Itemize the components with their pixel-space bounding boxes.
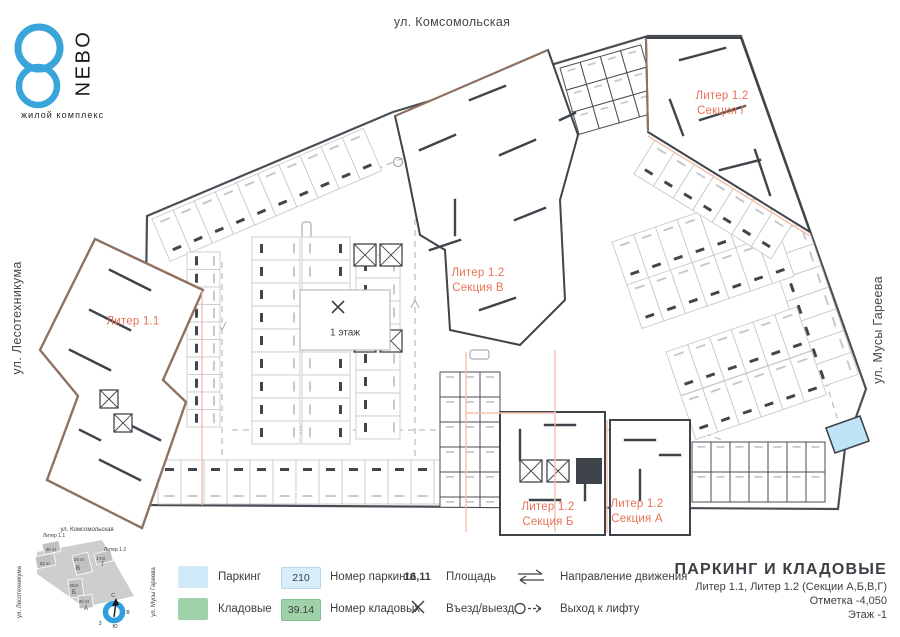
room-number-mark bbox=[774, 476, 782, 478]
stall-number-mark bbox=[293, 290, 295, 300]
room-number-mark bbox=[698, 446, 706, 448]
elevator-core bbox=[520, 460, 542, 482]
sheet-subtitle: Литер 1.1, Литер 1.2 (Секции А,Б,В,Г) bbox=[567, 581, 887, 593]
stall-number-mark bbox=[213, 413, 215, 423]
label-section-a-line1: Литер 1.2 bbox=[611, 497, 664, 512]
room-number-mark bbox=[466, 376, 474, 378]
parking-stall bbox=[187, 322, 220, 340]
sheet-floor: Этаж -1 bbox=[567, 609, 887, 621]
wheel-stop bbox=[280, 468, 289, 471]
minimap-bld-4: 20эт bbox=[69, 583, 78, 588]
stall-number-mark bbox=[395, 495, 405, 497]
compass-east: В bbox=[126, 610, 130, 616]
parking-stall bbox=[252, 398, 300, 421]
stall-number-mark bbox=[393, 285, 395, 295]
room-number-mark bbox=[736, 446, 744, 448]
storage-room bbox=[460, 422, 480, 447]
stall-number-mark bbox=[309, 405, 311, 415]
parking-stall bbox=[187, 357, 220, 375]
wheel-stop bbox=[364, 377, 367, 386]
parking-stall bbox=[187, 375, 220, 393]
wheel-stop bbox=[339, 428, 342, 437]
room-number-mark bbox=[466, 451, 474, 453]
stall-number-mark bbox=[293, 359, 295, 369]
parking-stall bbox=[388, 460, 411, 504]
parking-stall bbox=[411, 460, 434, 504]
stall-number-mark bbox=[349, 495, 359, 497]
label-section-b: Литер 1.2 Секция Б bbox=[522, 500, 575, 530]
elevator-core bbox=[114, 414, 132, 432]
label-section-b-line2: Секция Б bbox=[522, 515, 575, 530]
elevator-core bbox=[380, 244, 402, 266]
storage-room bbox=[440, 447, 460, 472]
stall-number-mark bbox=[213, 273, 215, 283]
room-number-mark bbox=[446, 401, 454, 403]
minimap-liter12: Литер 1.2 bbox=[104, 547, 126, 553]
storage-room bbox=[440, 372, 460, 397]
storage-room bbox=[460, 372, 480, 397]
sheet-elevation: Отметка -4,050 bbox=[567, 595, 887, 607]
label-section-v: Литер 1.2 Секция В bbox=[452, 266, 505, 296]
room-number-mark bbox=[466, 476, 474, 478]
room-number-mark bbox=[717, 476, 725, 478]
storage-room bbox=[440, 397, 460, 422]
storage-swatch bbox=[178, 598, 208, 620]
minimap-street-top: ул. Комсомольская bbox=[60, 527, 113, 533]
stall-number-mark bbox=[326, 495, 336, 497]
stall-number-mark bbox=[213, 326, 215, 336]
storage-room bbox=[460, 472, 480, 497]
room-number-mark bbox=[717, 446, 725, 448]
area-label: Площадь bbox=[446, 571, 496, 583]
storage-room bbox=[480, 472, 500, 497]
parking-stall bbox=[187, 410, 220, 428]
elevator-core bbox=[547, 460, 569, 482]
wheel-stop bbox=[195, 396, 198, 405]
area-value: 16,11 bbox=[404, 571, 431, 583]
parking-stall bbox=[252, 352, 300, 375]
room-number-mark bbox=[793, 446, 801, 448]
wheel-stop bbox=[195, 379, 198, 388]
parking-swatch bbox=[178, 566, 208, 588]
label-section-v-line2: Секция В bbox=[452, 281, 505, 296]
label-ground-floor: 1 этаж bbox=[330, 328, 360, 339]
wheel-stop bbox=[364, 400, 367, 409]
stall-number-mark bbox=[293, 313, 295, 323]
room-number-mark bbox=[486, 426, 494, 428]
title-block: ПАРКИНГ И КЛАДОВЫЕ Литер 1.1, Литер 1.2 … bbox=[567, 561, 887, 621]
room-number-mark bbox=[466, 501, 474, 503]
stall-number-mark bbox=[309, 267, 311, 277]
label-section-v-line1: Литер 1.2 bbox=[452, 266, 505, 281]
room-number-mark bbox=[812, 446, 820, 448]
wheel-stop bbox=[195, 361, 198, 370]
parking-stall bbox=[252, 237, 300, 260]
elevator-core bbox=[354, 244, 376, 266]
stall-number-mark bbox=[393, 423, 395, 433]
compass-west: З bbox=[98, 621, 101, 627]
stall-number-mark bbox=[293, 336, 295, 346]
elevator-exit-icon bbox=[512, 601, 548, 616]
wheel-stop bbox=[260, 267, 263, 276]
stall-number-mark bbox=[165, 495, 175, 497]
minimap-bld-1: 32 эт bbox=[40, 561, 51, 566]
room-number-mark bbox=[486, 401, 494, 403]
stall-number-mark bbox=[372, 495, 382, 497]
storage-room bbox=[440, 422, 460, 447]
ground-floor-box bbox=[300, 290, 390, 350]
stall-number-mark bbox=[211, 495, 221, 497]
wheel-stop bbox=[339, 405, 342, 414]
wheel-stop bbox=[418, 468, 427, 471]
room-number-mark bbox=[466, 401, 474, 403]
wheel-stop bbox=[195, 414, 198, 423]
stall-number-mark bbox=[418, 495, 428, 497]
parking-stall bbox=[252, 421, 300, 444]
room-number-mark bbox=[793, 476, 801, 478]
sheet-title: ПАРКИНГ И КЛАДОВЫЕ bbox=[567, 561, 887, 579]
parking-stall bbox=[250, 460, 273, 504]
wheel-stop bbox=[303, 468, 312, 471]
storage-room bbox=[480, 372, 500, 397]
wheel-stop bbox=[339, 244, 342, 253]
storage-room bbox=[480, 447, 500, 472]
label-section-g-line2: Секция Г bbox=[696, 104, 749, 119]
stall-number-mark bbox=[213, 361, 215, 371]
room-number-mark bbox=[486, 501, 494, 503]
label-section-a: Литер 1.2 Секция А bbox=[611, 497, 664, 527]
wheel-stop bbox=[260, 336, 263, 345]
storage-swatch-label: Кладовые bbox=[218, 603, 272, 615]
room-number-mark bbox=[774, 446, 782, 448]
stall-number-mark bbox=[393, 377, 395, 387]
parking-number-label: Номер паркинга bbox=[330, 571, 416, 583]
storage-room bbox=[460, 447, 480, 472]
wheel-stop bbox=[234, 468, 243, 471]
logo-mark-icon bbox=[12, 20, 82, 120]
stall-number-mark bbox=[188, 495, 198, 497]
minimap-bld-5: 20 эт bbox=[79, 599, 90, 604]
parking-stall bbox=[181, 460, 204, 504]
parking-stall bbox=[252, 283, 300, 306]
minimap-canvas: ул. Комсомольская ул. Лесотехникума ул. … bbox=[12, 520, 162, 637]
wheel-stop bbox=[260, 382, 263, 391]
room-number-mark bbox=[812, 476, 820, 478]
wheel-stop bbox=[339, 359, 342, 368]
wheel-stop bbox=[339, 382, 342, 391]
wheel-stop bbox=[326, 468, 335, 471]
wheel-stop bbox=[260, 313, 263, 322]
stall-number-mark bbox=[213, 308, 215, 318]
stall-number-mark bbox=[213, 396, 215, 406]
parking-stall bbox=[296, 460, 319, 504]
stall-number-mark bbox=[293, 382, 295, 392]
storage-room bbox=[440, 497, 460, 522]
stall-number-mark bbox=[309, 359, 311, 369]
stall-number-mark bbox=[257, 495, 267, 497]
wheel-stop bbox=[260, 290, 263, 299]
entry-exit-icon bbox=[410, 599, 426, 615]
parking-stall bbox=[187, 392, 220, 410]
stall-number-mark bbox=[309, 244, 311, 254]
logo-tagline: жилой комплекс bbox=[21, 110, 104, 120]
parking-stall bbox=[187, 252, 220, 270]
label-section-a-line2: Секция А bbox=[611, 512, 664, 527]
minimap-bld-2: 24 эт bbox=[74, 557, 85, 562]
parking-stall bbox=[187, 340, 220, 358]
minimap-bld-2-letter: В bbox=[76, 566, 80, 572]
elevator-core bbox=[100, 390, 118, 408]
wheel-stop bbox=[188, 468, 197, 471]
stall-number-mark bbox=[293, 428, 295, 438]
wheel-stop bbox=[195, 326, 198, 335]
room-number-mark bbox=[446, 426, 454, 428]
parking-stall bbox=[252, 375, 300, 398]
minimap-liter11: Литер 1.1 bbox=[43, 533, 65, 539]
street-label-left: ул. Лесотехникума bbox=[10, 261, 24, 374]
storage-number-label: Номер кладовых bbox=[330, 603, 420, 615]
room-number-mark bbox=[698, 476, 706, 478]
storage-room bbox=[460, 497, 480, 522]
parking-plan-page: ул. Комсомольская ул. Мусы Гареева ул. Л… bbox=[0, 0, 900, 637]
stall-number-mark bbox=[213, 291, 215, 301]
wheel-stop bbox=[364, 423, 367, 432]
shaft-solid bbox=[576, 458, 602, 484]
stall-number-mark bbox=[213, 343, 215, 353]
minimap-bld-5-letter: А bbox=[84, 606, 88, 612]
stall-number-mark bbox=[309, 428, 311, 438]
label-section-g: Литер 1.2 Секция Г bbox=[696, 89, 749, 119]
room-number-mark bbox=[446, 476, 454, 478]
room-number-mark bbox=[755, 446, 763, 448]
room-number-mark bbox=[446, 376, 454, 378]
room-number-mark bbox=[486, 451, 494, 453]
stall-number-mark bbox=[280, 495, 290, 497]
label-liter11: Литер 1.1 bbox=[107, 315, 160, 330]
room-number-mark bbox=[466, 426, 474, 428]
stall-number-mark bbox=[393, 400, 395, 410]
parking-stall bbox=[273, 460, 296, 504]
storage-room bbox=[480, 422, 500, 447]
wheel-stop bbox=[195, 309, 198, 318]
minimap-street-left: ул. Лесотехникума bbox=[17, 565, 23, 618]
compass-north: С bbox=[111, 593, 115, 599]
minimap-bld-0: 30 эт bbox=[46, 547, 57, 552]
logo: NEBO жилой комплекс bbox=[0, 0, 160, 130]
street-label-top: ул. Комсомольская bbox=[394, 15, 510, 29]
room-number-mark bbox=[736, 476, 744, 478]
wheel-stop bbox=[395, 468, 404, 471]
parking-stall bbox=[252, 329, 300, 352]
minimap-street-right: ул. Мусы Гареева bbox=[151, 567, 157, 617]
stall-number-mark bbox=[213, 378, 215, 388]
storage-room bbox=[460, 397, 480, 422]
room-number-mark bbox=[755, 476, 763, 478]
wheel-stop bbox=[349, 468, 358, 471]
room-number-mark bbox=[446, 501, 454, 503]
wheel-stop bbox=[260, 244, 263, 253]
label-section-g-line1: Литер 1.2 bbox=[696, 89, 749, 104]
wheel-stop bbox=[165, 468, 174, 471]
stall-number-mark bbox=[234, 495, 244, 497]
wheel-stop bbox=[211, 468, 220, 471]
parking-number-badge: 210 bbox=[281, 567, 321, 589]
entry-exit-label: Въезд/выезд bbox=[446, 603, 514, 615]
wheel-stop bbox=[260, 405, 263, 414]
parking-stall bbox=[319, 460, 342, 504]
minimap-bld-4-letter: Б bbox=[72, 590, 76, 596]
parking-stall bbox=[365, 460, 388, 504]
wheel-stop bbox=[195, 344, 198, 353]
logo-name: NEBO bbox=[73, 30, 96, 97]
parking-stall bbox=[252, 306, 300, 329]
storage-room bbox=[480, 497, 500, 522]
room-number-mark bbox=[446, 451, 454, 453]
stall-number-mark bbox=[213, 256, 215, 266]
minimap-bld-3: 17эт bbox=[96, 556, 105, 561]
label-section-b-line1: Литер 1.2 bbox=[522, 500, 575, 515]
wheel-stop bbox=[195, 256, 198, 265]
direction-arrows-icon bbox=[514, 568, 548, 586]
stall-number-mark bbox=[309, 382, 311, 392]
stall-number-mark bbox=[393, 354, 395, 364]
parking-stall bbox=[342, 460, 365, 504]
room-number-mark bbox=[486, 376, 494, 378]
compass-south: Ю bbox=[112, 624, 117, 630]
wheel-stop bbox=[195, 274, 198, 283]
stall-number-mark bbox=[293, 244, 295, 254]
parking-stall bbox=[204, 460, 227, 504]
stall-number-mark bbox=[393, 308, 395, 318]
location-minimap: ул. Комсомольская ул. Лесотехникума ул. … bbox=[12, 520, 162, 637]
parking-swatch-label: Паркинг bbox=[218, 571, 261, 583]
parking-stall bbox=[227, 460, 250, 504]
wheel-stop bbox=[257, 468, 266, 471]
room-number-mark bbox=[486, 476, 494, 478]
stall-number-mark bbox=[293, 267, 295, 277]
wheel-stop bbox=[339, 267, 342, 276]
stall-number-mark bbox=[293, 405, 295, 415]
parking-stall bbox=[252, 260, 300, 283]
wheel-stop bbox=[260, 359, 263, 368]
storage-number-badge: 39.14 bbox=[281, 599, 321, 621]
wheel-stop bbox=[364, 354, 367, 363]
wheel-stop bbox=[260, 428, 263, 437]
wheel-stop bbox=[372, 468, 381, 471]
storage-room bbox=[440, 472, 460, 497]
street-label-right: ул. Мусы Гареева bbox=[871, 276, 885, 384]
storage-room bbox=[480, 397, 500, 422]
stall-number-mark bbox=[303, 495, 313, 497]
